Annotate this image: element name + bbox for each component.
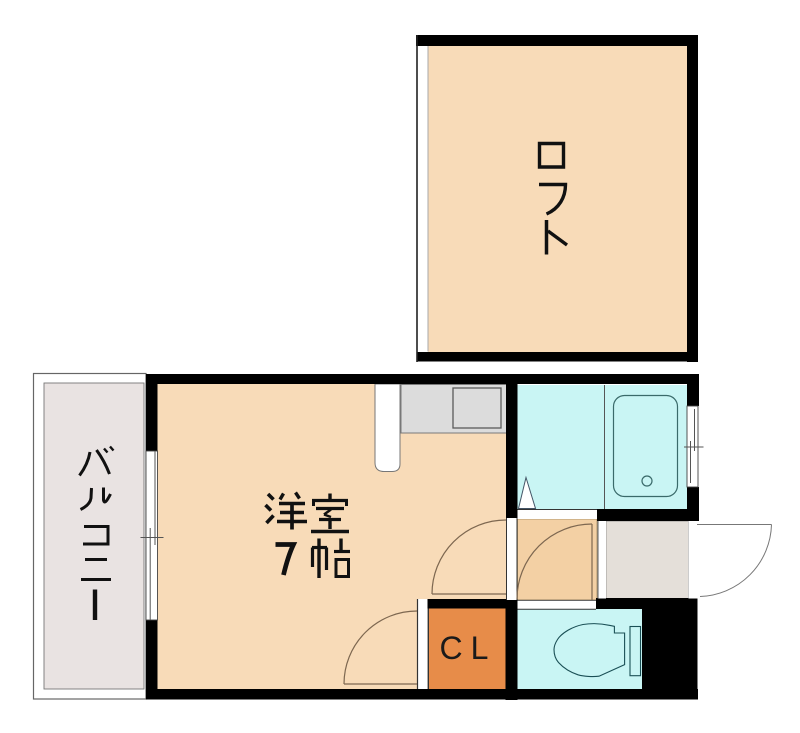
svg-text:CL: CL [440, 630, 497, 666]
